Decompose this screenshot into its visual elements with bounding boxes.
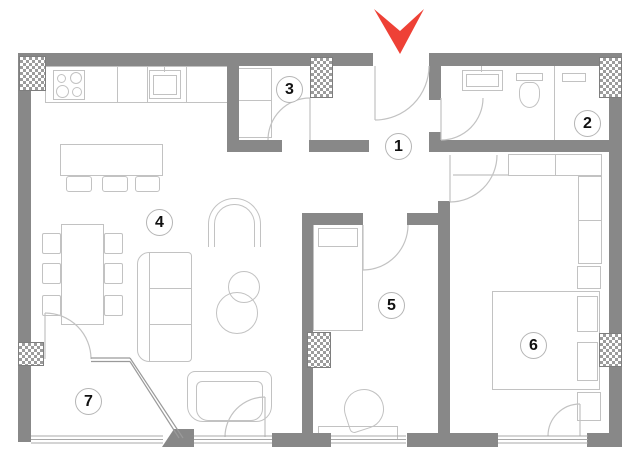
bar-stool (66, 176, 92, 192)
wardrobe-divider (555, 154, 556, 176)
floor-plan: 1 2 3 4 5 6 7 (0, 0, 640, 463)
dining-chair (104, 233, 123, 254)
entrance-arrow-icon (374, 9, 424, 54)
nightstand (577, 392, 601, 421)
wardrobe-divider (578, 220, 602, 221)
column-hatch (307, 332, 331, 368)
kitchen-island (60, 144, 163, 176)
toilet-bowl (519, 82, 540, 108)
sofa (137, 252, 192, 362)
wall-segment (438, 201, 450, 433)
stove-burner (72, 87, 82, 97)
wall-segment (407, 433, 498, 447)
dining-chair (42, 263, 61, 284)
entrance-door-arc (375, 66, 429, 120)
dining-chair (104, 295, 123, 316)
dining-chair (104, 263, 123, 284)
bathroom-door-arc (441, 98, 483, 140)
wall-segment (162, 429, 194, 447)
kitchen-sink-basin (153, 75, 177, 95)
room-label-1: 1 (385, 133, 412, 160)
column-hatch (310, 57, 333, 98)
loveseat-seat-line (196, 381, 263, 421)
room-label-2: 2 (574, 110, 601, 137)
balcony-glazing (91, 358, 183, 438)
room-label-7: 7 (75, 388, 102, 415)
bar-stool (102, 176, 128, 192)
sofa-cushion-line (150, 324, 191, 325)
pillow (577, 296, 598, 332)
stove-burner (57, 74, 66, 83)
washbasin-basin (466, 74, 499, 87)
nightstand (577, 266, 601, 289)
dining-chair (42, 295, 61, 316)
pillow (318, 228, 358, 247)
room-label-6: 6 (520, 332, 547, 359)
closet-shelf (237, 100, 272, 138)
dining-table (61, 224, 104, 325)
room-label-5: 5 (378, 292, 405, 319)
wall-segment (609, 53, 622, 447)
dining-chair (42, 233, 61, 254)
wall-segment (302, 213, 313, 433)
wall-segment (429, 57, 441, 100)
wall-segment (227, 140, 282, 152)
counter-divider (147, 66, 148, 103)
wall-segment (429, 140, 610, 152)
room-number: 3 (285, 81, 294, 99)
bar-stool (135, 176, 160, 192)
room-number: 5 (387, 297, 396, 315)
sofa-cushion-line (150, 288, 191, 289)
wall-segment (272, 433, 331, 447)
column-hatch (19, 56, 46, 91)
wall-segment (407, 213, 438, 225)
bathroom-divider-line (554, 66, 555, 140)
wall-segment (18, 53, 31, 442)
bedroom5-door-arc (363, 225, 408, 270)
bedroom6-balcony-door-arc (548, 404, 580, 436)
bedroom6-window (498, 436, 588, 443)
bedroom6-door-arc (450, 155, 497, 202)
closet-shelf (237, 68, 272, 101)
room-label-4: 4 (146, 209, 173, 236)
wall-segment (309, 140, 369, 152)
wall-segment (587, 433, 622, 447)
closet-door-arc (268, 98, 310, 140)
room-number: 7 (84, 393, 93, 411)
wall-segment (227, 60, 239, 152)
column-hatch (599, 333, 622, 367)
counter-divider (186, 66, 187, 103)
wall-segment (429, 53, 622, 66)
coffee-table (216, 292, 258, 334)
stove-burner (56, 85, 69, 98)
balcony-window (31, 436, 163, 443)
living-room-window (194, 436, 272, 443)
pillow (577, 342, 598, 381)
armchair-inner-line (214, 204, 255, 247)
counter-divider (117, 66, 118, 103)
room-number: 2 (583, 115, 592, 133)
column-hatch (599, 57, 622, 98)
column-hatch (18, 342, 44, 366)
room-number: 6 (529, 337, 538, 355)
room-label-3: 3 (276, 76, 303, 103)
toilet-tank (516, 73, 543, 81)
bathroom-shelf (562, 73, 586, 82)
room-number: 4 (155, 214, 164, 232)
sofa-backrest-line (149, 253, 150, 361)
room-number: 1 (394, 138, 403, 156)
stove-burner (70, 72, 82, 84)
